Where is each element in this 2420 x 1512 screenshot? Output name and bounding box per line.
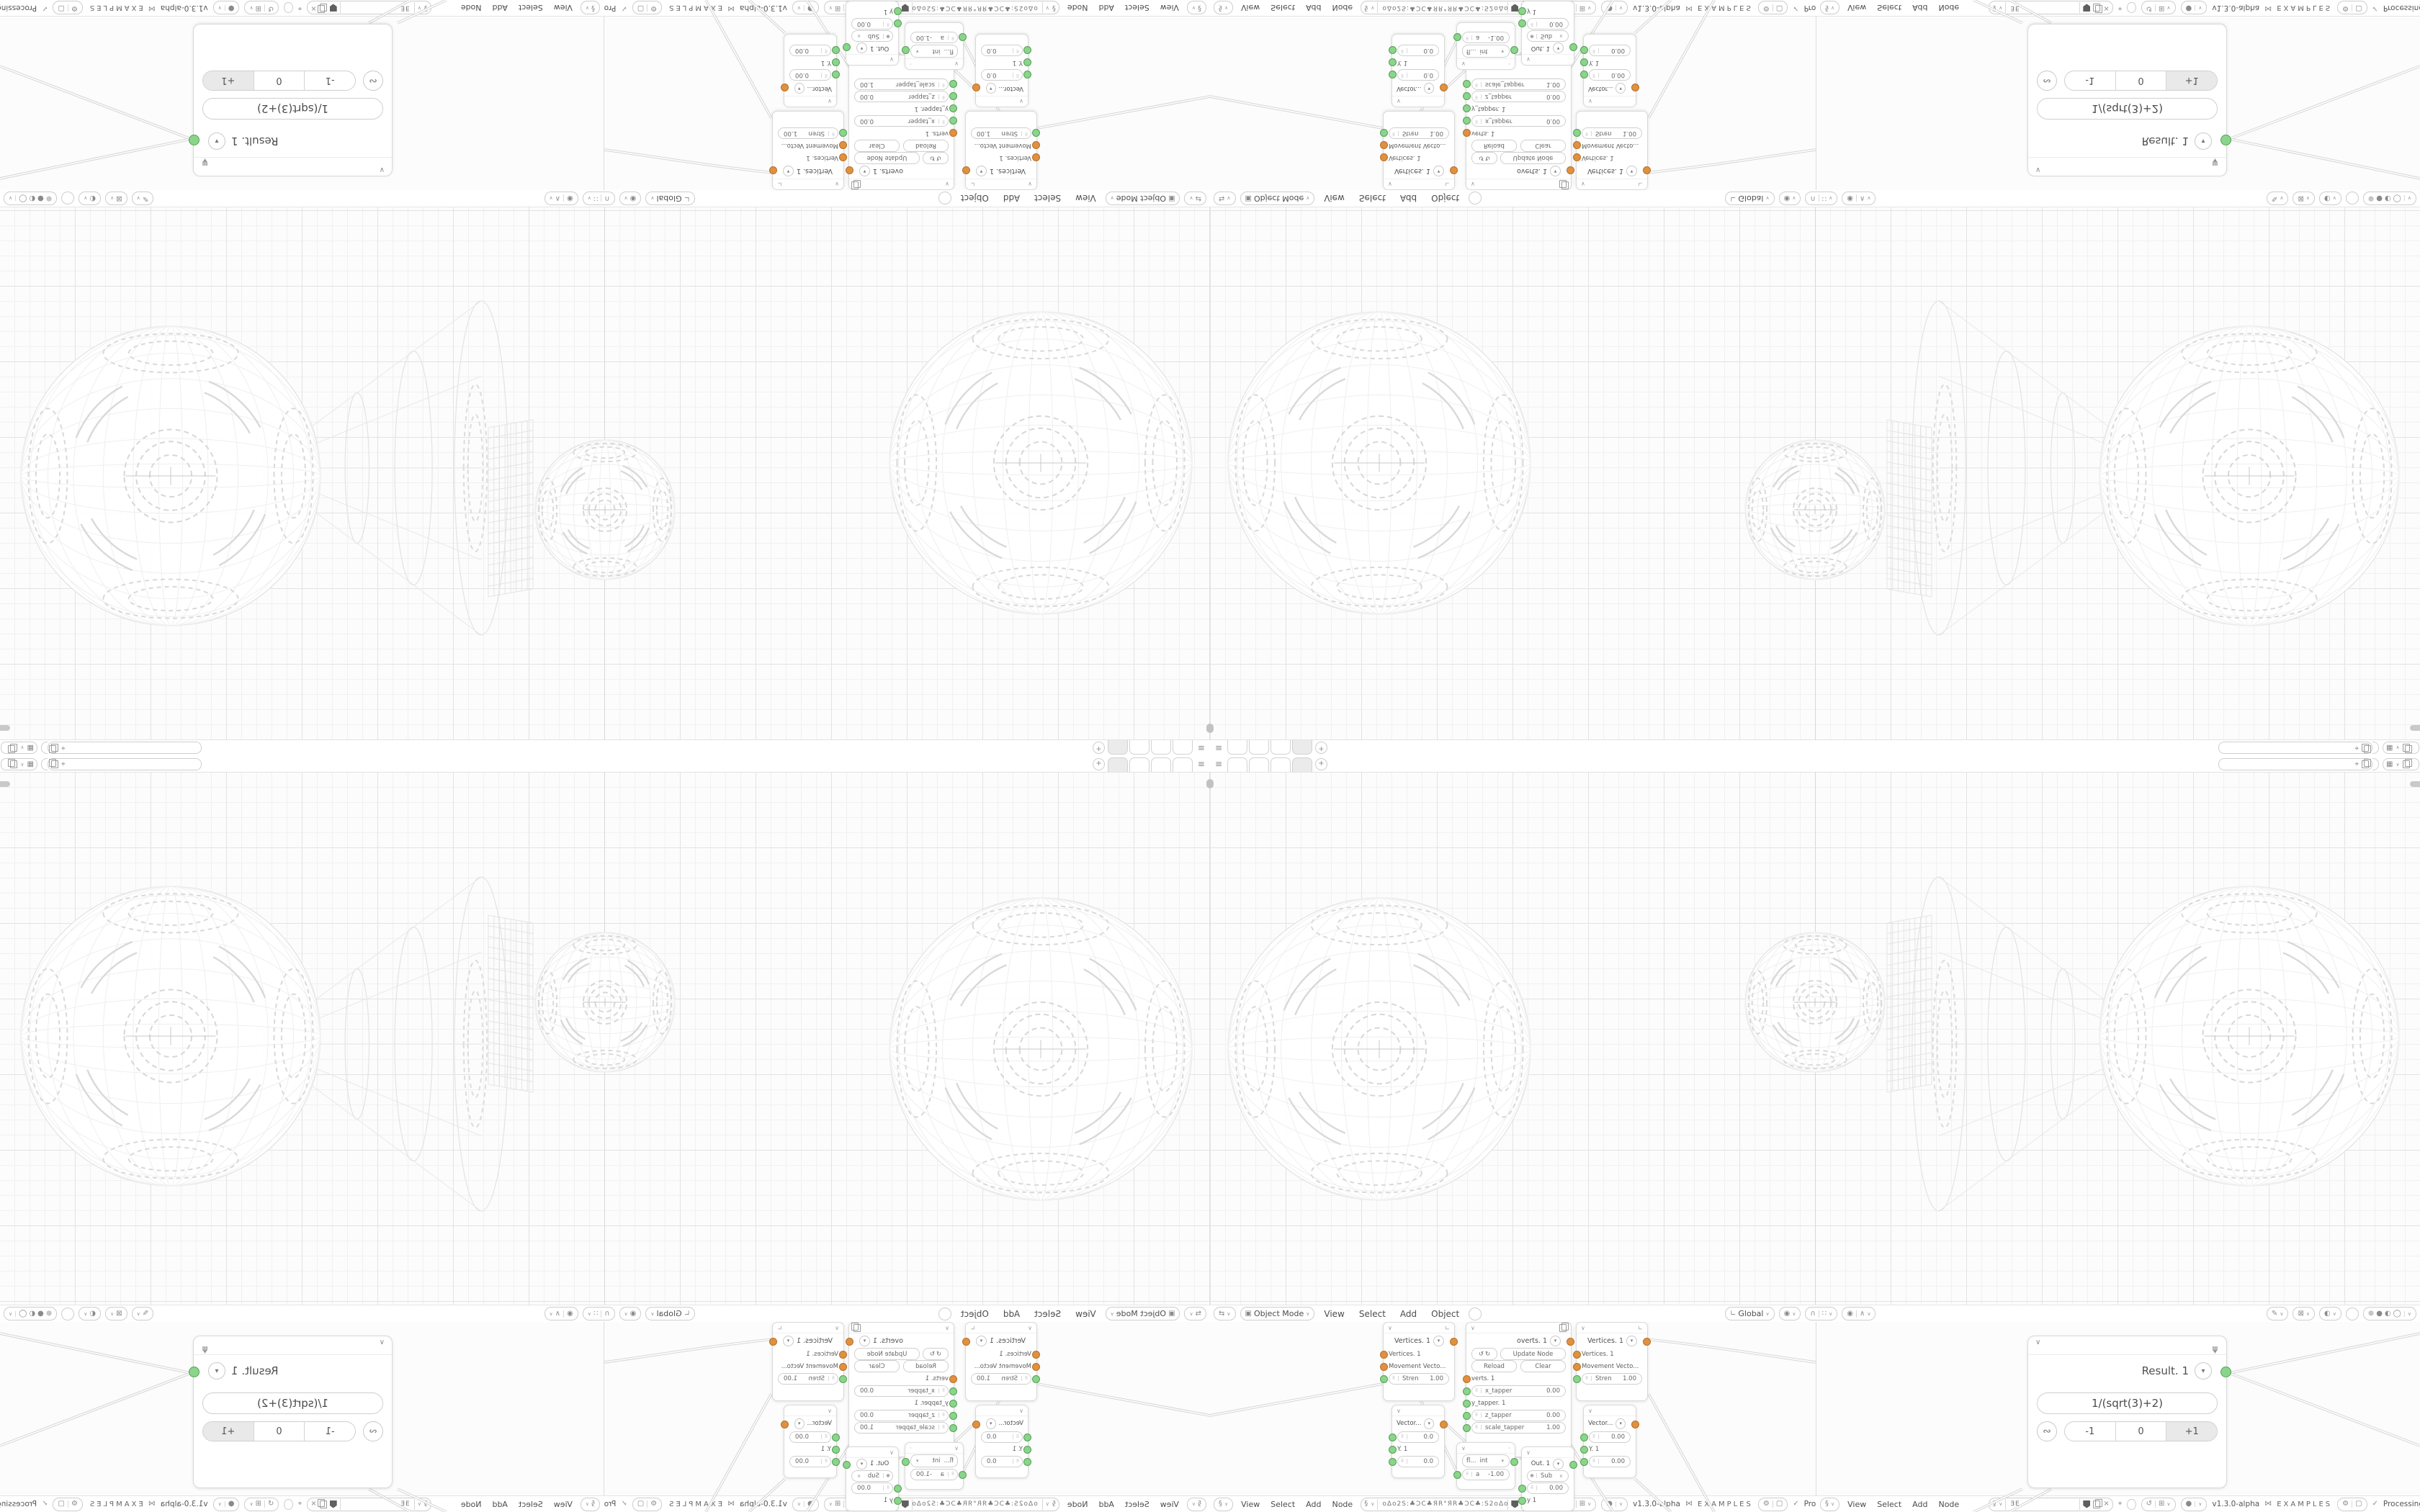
drag-handle-icon[interactable]: ⠿ bbox=[1013, 1459, 1022, 1464]
value-field[interactable]: ⠿ 0.00 bbox=[789, 70, 831, 81]
node-overts[interactable]: ∨ overts. 1 ▾ ↺ ↻ Update Node Reload Cle… bbox=[1466, 1322, 1572, 1457]
shading-wireframe-icon[interactable]: ⊕ bbox=[46, 195, 52, 202]
input-socket[interactable] bbox=[1453, 1471, 1461, 1479]
input-socket[interactable] bbox=[1573, 153, 1581, 161]
menu-select[interactable]: Select bbox=[1359, 194, 1386, 204]
input-socket[interactable] bbox=[1463, 80, 1471, 88]
dropdown-button[interactable]: ▾ bbox=[859, 166, 870, 177]
dropdown-button[interactable]: ▾ bbox=[1424, 1418, 1434, 1429]
input-socket[interactable] bbox=[1580, 1446, 1588, 1454]
workspace-tab[interactable] bbox=[1129, 757, 1149, 772]
collapse-chevron-icon[interactable]: ∨ bbox=[1526, 1449, 1531, 1456]
output-socket[interactable] bbox=[2220, 1367, 2231, 1377]
app-menu-icon[interactable]: ≡ bbox=[1198, 759, 1205, 769]
pivot-point-button[interactable]: ◉ ∨ bbox=[1779, 192, 1801, 205]
transform-orientation-dropdown[interactable]: ∟ Global ∨ bbox=[1725, 192, 1775, 205]
dropdown-button[interactable]: ▾ bbox=[1626, 1336, 1637, 1346]
input-socket[interactable] bbox=[1573, 1351, 1581, 1359]
collapse-chevron-icon[interactable]: ∨ bbox=[889, 1449, 894, 1456]
pin-icon[interactable]: ⌖ bbox=[2354, 761, 2359, 768]
drag-handle-icon[interactable]: ⠿ bbox=[1463, 1472, 1472, 1477]
shading-rendered-icon[interactable]: ◯ bbox=[19, 195, 27, 202]
value-field[interactable]: ⠿ x_tapper 0.00 bbox=[1471, 1385, 1566, 1397]
copy-icon[interactable] bbox=[2362, 760, 2369, 768]
node-overts[interactable]: ∨ overts. 1 ▾ ↺ ↻ Update Node Reload Cle… bbox=[848, 1322, 954, 1457]
copy-icon[interactable] bbox=[2403, 744, 2410, 752]
input-socket[interactable] bbox=[1023, 46, 1031, 54]
input-socket[interactable] bbox=[1573, 141, 1581, 149]
drag-handle-icon[interactable]: ⠿ bbox=[1398, 1459, 1407, 1464]
node-result[interactable]: ∨ ⋔ Result. 1 ▾ 1/(sqrt(3)+2) ∾ -1 0 +1 bbox=[2027, 1336, 2227, 1488]
drag-handle-icon[interactable]: ⠿ bbox=[1472, 82, 1482, 87]
input-socket[interactable] bbox=[1580, 58, 1588, 66]
dropdown-button[interactable]: ▾ bbox=[783, 166, 794, 177]
zero-button[interactable]: 0 bbox=[2115, 71, 2166, 90]
value-field[interactable]: ⠿ Stren 1.00 bbox=[971, 128, 1031, 140]
output-socket[interactable] bbox=[1450, 1338, 1458, 1346]
shading-material-icon[interactable]: ◐ bbox=[2385, 1310, 2391, 1318]
search-circle-button[interactable] bbox=[1469, 1308, 1482, 1320]
input-socket[interactable] bbox=[1573, 1363, 1581, 1371]
value-field[interactable]: ⠿ a -1.00 bbox=[1462, 32, 1510, 44]
input-socket[interactable] bbox=[839, 153, 847, 161]
decrement-button[interactable]: -1 bbox=[2065, 1422, 2115, 1441]
node-vector[interactable]: ∨ Vector... ▾ ⠿ 0.0 Y. 1 ⠿ 0.0 bbox=[1391, 1405, 1445, 1478]
input-socket[interactable] bbox=[949, 1400, 957, 1408]
input-socket[interactable] bbox=[1463, 1412, 1471, 1420]
drag-handle-icon[interactable]: ⠿ bbox=[1472, 1413, 1482, 1418]
xray-toggle-button[interactable] bbox=[61, 1308, 74, 1320]
collapse-chevron-icon[interactable]: ∨ bbox=[1461, 1445, 1466, 1452]
dropdown-button[interactable]: ▾ bbox=[856, 1459, 867, 1470]
refresh-buttons[interactable]: ↺ ↻ bbox=[923, 152, 949, 164]
value-field[interactable]: ⠿ Stren 1.00 bbox=[778, 1373, 838, 1385]
operation-select[interactable]: ● Sub ∨ bbox=[851, 1470, 893, 1482]
collapse-chevron-icon[interactable]: ∨ bbox=[828, 98, 832, 104]
input-socket[interactable] bbox=[1380, 153, 1388, 161]
undo-icon[interactable]: ↺ bbox=[936, 1351, 941, 1358]
input-socket[interactable] bbox=[1463, 1424, 1471, 1432]
input-socket[interactable] bbox=[1518, 19, 1526, 27]
increment-button[interactable]: +1 bbox=[203, 1422, 254, 1441]
output-socket[interactable] bbox=[902, 1458, 910, 1466]
input-socket[interactable] bbox=[1518, 1485, 1526, 1493]
node-vertices[interactable]: ∨ ∟ Vertices. 1 ▾ Vertices. 1 Movement V… bbox=[965, 1322, 1037, 1401]
menu-select[interactable]: Select bbox=[1359, 1309, 1386, 1319]
redo-icon[interactable]: ↻ bbox=[1485, 1351, 1490, 1358]
drag-handle-icon[interactable]: ⠿ bbox=[938, 1425, 948, 1430]
gizmo-toggle-button[interactable]: ⊠ ∨ bbox=[2293, 1307, 2315, 1320]
shading-material-icon[interactable]: ◐ bbox=[29, 195, 35, 202]
proportional-edit-button[interactable]: ◉ ∧ ∨ bbox=[544, 192, 578, 205]
value-field[interactable]: ⠿ z_tapper 0.00 bbox=[854, 91, 949, 103]
node-int-input[interactable]: ∨ · fl... int ▾ ⠿ a -1.00 bbox=[905, 1442, 964, 1490]
input-socket[interactable] bbox=[1463, 104, 1471, 112]
drag-handle-icon[interactable]: ⠿ bbox=[938, 1413, 948, 1418]
value-field[interactable]: ⠿ Stren 1.00 bbox=[1389, 128, 1449, 140]
editor-type-button[interactable]: ⇆ ∨ bbox=[1184, 1307, 1206, 1320]
value-field[interactable]: ⠿ 0.0 bbox=[1397, 45, 1439, 57]
drag-handle-icon[interactable]: ⠿ bbox=[1013, 1434, 1022, 1439]
menu-add[interactable]: Add bbox=[1003, 1309, 1020, 1319]
menu-select[interactable]: Select bbox=[1034, 1309, 1061, 1319]
pin-icon[interactable]: ⌖ bbox=[2354, 744, 2359, 752]
node-vertices[interactable]: ∨ ∟ Vertices. 1 ▾ Vertices. 1 Movement V… bbox=[1576, 1322, 1648, 1401]
refresh-buttons[interactable]: ↺ ↻ bbox=[923, 1348, 949, 1360]
copy-icon[interactable] bbox=[2403, 760, 2410, 768]
menu-add[interactable]: Add bbox=[1003, 194, 1020, 204]
drag-handle-icon[interactable]: ⠿ bbox=[1013, 73, 1022, 78]
add-workspace-button[interactable]: + bbox=[1315, 742, 1327, 754]
value-field[interactable]: ⠿ x_tapper 0.00 bbox=[1471, 116, 1566, 127]
menu-select[interactable]: Select bbox=[1034, 194, 1061, 204]
input-socket[interactable] bbox=[839, 1375, 847, 1383]
type-select[interactable]: fl... int ▾ bbox=[1462, 45, 1510, 58]
gizmo-toggle-button[interactable]: ⊠ ∨ bbox=[105, 1307, 127, 1320]
drag-handle-icon[interactable]: ⠿ bbox=[938, 1388, 948, 1393]
search-circle-button[interactable] bbox=[1469, 192, 1482, 205]
link-toggle-button[interactable]: ∾ bbox=[363, 1421, 383, 1441]
menu-view[interactable]: View bbox=[1075, 1309, 1095, 1319]
drag-handle-icon[interactable]: ⠿ bbox=[1021, 131, 1031, 136]
view-layer-selector[interactable]: ▦ ∨ bbox=[2383, 758, 2419, 770]
pivot-point-button[interactable]: ◉ ∨ bbox=[619, 192, 642, 205]
dropdown-button[interactable]: ▾ bbox=[2195, 1362, 2212, 1380]
xray-toggle-button[interactable] bbox=[61, 192, 74, 205]
refresh-buttons[interactable]: ↺ ↻ bbox=[1471, 152, 1497, 164]
value-field[interactable]: ⠿ 0.0 bbox=[981, 1431, 1023, 1443]
input-socket[interactable] bbox=[959, 33, 967, 41]
update-node-button[interactable]: Update Node bbox=[854, 152, 920, 164]
drag-handle-icon[interactable]: ⠿ bbox=[821, 73, 830, 78]
drag-handle-icon[interactable]: ⠿ bbox=[1013, 48, 1022, 53]
dropdown-button[interactable]: ▾ bbox=[986, 1418, 996, 1429]
input-socket[interactable] bbox=[959, 1471, 967, 1479]
drag-handle-icon[interactable]: ⠿ bbox=[1528, 1485, 1537, 1490]
menu-object[interactable]: Object bbox=[1431, 194, 1459, 204]
output-socket[interactable] bbox=[962, 167, 970, 175]
mode-dropdown[interactable]: ▣ Object Mode ∨ bbox=[1106, 192, 1180, 205]
update-node-button[interactable]: Update Node bbox=[1500, 1348, 1566, 1360]
drag-handle-icon[interactable]: ⠿ bbox=[938, 82, 948, 87]
mode-dropdown[interactable]: ▣ Object Mode ∨ bbox=[1106, 1307, 1180, 1320]
link-toggle-button[interactable]: ∾ bbox=[2037, 1421, 2057, 1441]
shading-rendered-icon[interactable]: ◯ bbox=[19, 1310, 27, 1318]
clear-button[interactable]: Clear bbox=[1520, 1360, 1566, 1372]
collapse-chevron-icon[interactable]: ∨ bbox=[1019, 98, 1023, 104]
redo-icon[interactable]: ↻ bbox=[930, 155, 935, 162]
shading-solid-icon[interactable]: ● bbox=[2376, 1310, 2383, 1318]
redo-icon[interactable]: ↻ bbox=[1485, 155, 1490, 162]
collapse-chevron-icon[interactable]: ∨ bbox=[2035, 158, 2040, 174]
value-field[interactable]: ⠿ 0.00 bbox=[1589, 1431, 1631, 1443]
drag-handle-icon[interactable]: ⠿ bbox=[1582, 1376, 1592, 1381]
copy-icon[interactable] bbox=[10, 760, 17, 768]
shading-wireframe-icon[interactable]: ⊕ bbox=[2368, 195, 2374, 202]
dropdown-button[interactable]: ▾ bbox=[208, 132, 225, 150]
node-math-sub[interactable]: ∨ Out. 1 ▾ ● Sub ∨ ⠿ 0.00 y 1 bbox=[846, 1, 899, 66]
redo-icon[interactable]: ↻ bbox=[930, 1351, 935, 1358]
transform-orientation-dropdown[interactable]: ∟ Global ∨ bbox=[1725, 1307, 1775, 1320]
gizmo-toggle-button[interactable]: ⊠ ∨ bbox=[2293, 192, 2315, 205]
collapse-chevron-icon[interactable]: ∨ bbox=[1588, 1408, 1592, 1414]
value-field[interactable]: ⠿ 0.0 bbox=[981, 70, 1023, 81]
output-socket[interactable] bbox=[972, 84, 980, 92]
node-vertices[interactable]: ∨ ∟ Vertices. 1 ▾ Vertices. 1 Movement V… bbox=[1383, 1322, 1455, 1401]
drag-handle-icon[interactable]: ⠿ bbox=[1398, 73, 1407, 78]
viewport-3d[interactable] bbox=[1210, 772, 2420, 1305]
proportional-edit-button[interactable]: ◉ ∧ ∨ bbox=[1842, 1307, 1875, 1320]
value-field[interactable]: ⠿ 0.0 bbox=[1397, 1456, 1439, 1467]
collapse-chevron-icon[interactable]: ∨ bbox=[1019, 1408, 1023, 1414]
input-socket[interactable] bbox=[1032, 141, 1040, 149]
input-socket[interactable] bbox=[894, 1497, 902, 1505]
dropdown-button[interactable]: ▾ bbox=[976, 166, 987, 177]
node-int-input[interactable]: ∨ · fl... int ▾ ⠿ a -1.00 bbox=[1456, 1442, 1515, 1490]
node-vector[interactable]: ∨ Vector... ▾ ⠿ 0.00 Y. 1 ⠿ 0.00 bbox=[784, 1405, 837, 1478]
search-circle-button[interactable] bbox=[938, 1308, 951, 1320]
scene-selector[interactable]: ⌖ bbox=[48, 758, 202, 770]
value-field[interactable]: ⠿ x_tapper 0.00 bbox=[854, 1385, 949, 1397]
drag-handle-icon[interactable]: ⠿ bbox=[1582, 131, 1592, 136]
area-corner-handle[interactable] bbox=[0, 781, 10, 787]
workspace-tab[interactable] bbox=[1270, 757, 1291, 772]
input-socket[interactable] bbox=[1518, 1497, 1526, 1505]
output-socket[interactable] bbox=[1510, 1458, 1518, 1466]
menu-view[interactable]: View bbox=[1324, 194, 1344, 204]
input-socket[interactable] bbox=[1573, 129, 1581, 137]
workspace-tab[interactable] bbox=[1270, 740, 1291, 755]
collapse-chevron-icon[interactable]: ∨ bbox=[945, 1325, 949, 1331]
input-socket[interactable] bbox=[894, 7, 902, 15]
value-field[interactable]: ⠿ 0.00 bbox=[789, 1431, 831, 1443]
shading-wireframe-icon[interactable]: ⊕ bbox=[46, 1310, 52, 1318]
node-overts[interactable]: ∨ overts. 1 ▾ ↺ ↻ Update Node Reload Cle… bbox=[1466, 55, 1572, 190]
collapse-chevron-icon[interactable]: ∨ bbox=[828, 1408, 832, 1414]
collapse-chevron-icon[interactable]: ∨ bbox=[1397, 1408, 1401, 1414]
workspace-tab[interactable] bbox=[1249, 757, 1269, 772]
value-field[interactable]: ⠿ scale_tapper 1.00 bbox=[1471, 1422, 1566, 1434]
value-field[interactable]: ⠿ 0.00 bbox=[851, 19, 893, 30]
output-socket[interactable] bbox=[1440, 1421, 1448, 1428]
drag-handle-icon[interactable]: ⠿ bbox=[948, 35, 957, 40]
collapse-chevron-icon[interactable]: ∨ bbox=[1581, 181, 1585, 187]
drag-handle-icon[interactable]: ⠿ bbox=[1472, 119, 1482, 124]
transform-orientation-dropdown[interactable]: ∟ Global ∨ bbox=[645, 192, 695, 205]
input-socket[interactable] bbox=[1032, 129, 1040, 137]
value-field[interactable]: ⠿ Stren 1.00 bbox=[1389, 1373, 1449, 1385]
app-menu-icon[interactable]: ≡ bbox=[1215, 743, 1222, 753]
increment-button[interactable]: +1 bbox=[2166, 71, 2217, 90]
input-socket[interactable] bbox=[1463, 1375, 1471, 1383]
reload-button[interactable]: Reload bbox=[1471, 1360, 1517, 1372]
shading-solid-icon[interactable]: ● bbox=[37, 1310, 44, 1318]
shading-material-icon[interactable]: ◐ bbox=[29, 1310, 35, 1318]
input-socket[interactable] bbox=[832, 71, 840, 78]
area-corner-handle[interactable] bbox=[2410, 725, 2420, 731]
drag-handle-icon[interactable]: ⠿ bbox=[1389, 1376, 1399, 1381]
input-socket[interactable] bbox=[949, 117, 957, 125]
dropdown-button[interactable]: ▾ bbox=[1433, 166, 1444, 177]
decrement-button[interactable]: -1 bbox=[305, 71, 355, 90]
view-layer-selector[interactable]: ▦ ∨ bbox=[1, 758, 37, 770]
dropdown-button[interactable]: ▾ bbox=[1626, 166, 1637, 177]
input-socket[interactable] bbox=[1463, 117, 1471, 125]
input-socket[interactable] bbox=[839, 1351, 847, 1359]
input-socket[interactable] bbox=[1380, 1363, 1388, 1371]
dropdown-button[interactable]: ▾ bbox=[794, 1418, 805, 1429]
dropdown-button[interactable]: ▾ bbox=[1615, 84, 1626, 94]
zero-button[interactable]: 0 bbox=[254, 1422, 305, 1441]
drag-handle-icon[interactable]: ⠿ bbox=[938, 94, 948, 99]
workspace-tab[interactable] bbox=[1227, 757, 1247, 772]
input-socket[interactable] bbox=[1023, 1434, 1031, 1441]
workspace-tab-active[interactable] bbox=[1108, 757, 1128, 772]
shading-rendered-icon[interactable]: ◯ bbox=[2393, 1310, 2401, 1318]
output-socket[interactable] bbox=[972, 1421, 980, 1428]
scene-selector[interactable]: ⌖ bbox=[48, 742, 202, 754]
shading-mode-switch[interactable]: ⊕ ● ◐ ◯ ∨ bbox=[2363, 1307, 2416, 1320]
dropdown-button[interactable]: ▾ bbox=[1553, 43, 1564, 54]
value-field[interactable]: ⠿ 0.00 bbox=[789, 45, 831, 57]
collapse-chevron-icon[interactable]: ∨ bbox=[954, 1445, 959, 1452]
drag-handle-icon[interactable]: ⠿ bbox=[821, 48, 830, 53]
snapping-button[interactable]: ∩ ∷ ∨ bbox=[583, 192, 615, 205]
input-socket[interactable] bbox=[1023, 58, 1031, 66]
drag-handle-icon[interactable]: ⠿ bbox=[1398, 48, 1407, 53]
area-corner-handle[interactable] bbox=[0, 725, 10, 731]
viewport-3d[interactable] bbox=[1210, 207, 2420, 740]
input-socket[interactable] bbox=[1518, 7, 1526, 15]
node-vertices[interactable]: ∨ ∟ Vertices. 1 ▾ Vertices. 1 Movement V… bbox=[772, 111, 844, 190]
node-result[interactable]: ∨ ⋔ Result. 1 ▾ 1/(sqrt(3)+2) ∾ -1 0 +1 bbox=[2027, 24, 2227, 176]
input-socket[interactable] bbox=[1389, 58, 1397, 66]
refresh-buttons[interactable]: ↺ ↻ bbox=[1471, 1348, 1497, 1360]
drag-handle-icon[interactable]: ⠿ bbox=[1590, 48, 1599, 53]
view-layer-selector[interactable]: ▦ ∨ bbox=[1, 742, 37, 754]
pivot-point-button[interactable]: ◉ ∨ bbox=[1779, 1307, 1801, 1320]
zero-button[interactable]: 0 bbox=[254, 71, 305, 90]
value-field[interactable]: ⠿ z_tapper 0.00 bbox=[854, 1410, 949, 1421]
dropdown-button[interactable]: ▾ bbox=[1433, 1336, 1444, 1346]
input-socket[interactable] bbox=[1463, 92, 1471, 100]
input-socket[interactable] bbox=[839, 141, 847, 149]
input-socket[interactable] bbox=[1023, 1446, 1031, 1454]
value-field[interactable]: ⠿ 0.00 bbox=[851, 1482, 893, 1494]
input-socket[interactable] bbox=[832, 1446, 840, 1454]
input-socket[interactable] bbox=[1389, 46, 1397, 54]
shading-mode-switch[interactable]: ⊕ ● ◐ ◯ ∨ bbox=[2363, 192, 2416, 205]
pin-icon[interactable]: ⌖ bbox=[61, 761, 66, 768]
dropdown-button[interactable]: ▾ bbox=[1424, 84, 1434, 94]
menu-object[interactable]: Object bbox=[1431, 1309, 1459, 1319]
dropdown-button[interactable]: ▾ bbox=[976, 1336, 987, 1346]
expression-field[interactable]: 1/(sqrt(3)+2) bbox=[202, 98, 383, 120]
editor-type-button[interactable]: ⇆ ∨ bbox=[1184, 192, 1206, 205]
node-vertices[interactable]: ∨ ∟ Vertices. 1 ▾ Vertices. 1 Movement V… bbox=[1383, 111, 1455, 190]
copy-icon[interactable] bbox=[51, 744, 58, 752]
viewport-3d[interactable] bbox=[0, 207, 1210, 740]
output-socket[interactable] bbox=[962, 1338, 970, 1346]
input-socket[interactable] bbox=[949, 80, 957, 88]
input-socket[interactable] bbox=[1032, 1363, 1040, 1371]
reload-button[interactable]: Reload bbox=[1471, 140, 1517, 152]
expression-field[interactable]: 1/(sqrt(3)+2) bbox=[2037, 98, 2218, 120]
shading-mode-switch[interactable]: ⊕ ● ◐ ◯ ∨ bbox=[4, 1307, 57, 1320]
collapse-chevron-icon[interactable]: ∨ bbox=[380, 1338, 385, 1354]
copy-icon[interactable] bbox=[2362, 744, 2369, 752]
editor-type-button[interactable]: ⇆ ∨ bbox=[1214, 1307, 1236, 1320]
value-field[interactable]: ⠿ a -1.00 bbox=[910, 1469, 958, 1480]
node-vector[interactable]: ∨ Vector... ▾ ⠿ 0.00 Y. 1 ⠿ 0.00 bbox=[1583, 34, 1636, 107]
input-socket[interactable] bbox=[1580, 71, 1588, 78]
drag-handle-icon[interactable]: ⠿ bbox=[828, 131, 838, 136]
drag-handle-icon[interactable]: ⠿ bbox=[1389, 131, 1399, 136]
shading-rendered-icon[interactable]: ◯ bbox=[2393, 195, 2401, 202]
node-vertices[interactable]: ∨ ∟ Vertices. 1 ▾ Vertices. 1 Movement V… bbox=[772, 1322, 844, 1401]
xray-toggle-button[interactable] bbox=[2346, 1308, 2359, 1320]
add-workspace-button[interactable]: + bbox=[1093, 758, 1105, 770]
output-socket[interactable] bbox=[781, 1421, 789, 1428]
drag-handle-icon[interactable]: ⠿ bbox=[821, 1434, 830, 1439]
area-corner-handle[interactable] bbox=[2410, 781, 2420, 787]
transform-orientation-dropdown[interactable]: ∟ Global ∨ bbox=[645, 1307, 695, 1320]
collapse-chevron-icon[interactable]: ∨ bbox=[1028, 181, 1032, 187]
copy-icon[interactable] bbox=[51, 760, 58, 768]
annotate-tool-button[interactable]: ✎ ∨ bbox=[132, 192, 154, 205]
dropdown-button[interactable]: ▾ bbox=[794, 84, 805, 94]
workspace-tab[interactable] bbox=[1227, 740, 1247, 755]
undo-icon[interactable]: ↺ bbox=[936, 155, 941, 162]
node-vector[interactable]: ∨ Vector... ▾ ⠿ 0.00 Y. 1 ⠿ 0.00 bbox=[1583, 1405, 1636, 1478]
operation-select[interactable]: ● Sub ∨ bbox=[851, 31, 893, 42]
annotate-tool-button[interactable]: ✎ ∨ bbox=[132, 1307, 154, 1320]
value-field[interactable]: ⠿ Stren 1.00 bbox=[778, 128, 838, 140]
update-node-button[interactable]: Update Node bbox=[1500, 152, 1566, 164]
output-socket[interactable] bbox=[846, 167, 853, 175]
drag-handle-icon[interactable]: ⠿ bbox=[883, 22, 892, 27]
value-field[interactable]: ⠿ 0.00 bbox=[1589, 45, 1631, 57]
value-field[interactable]: ⠿ 0.0 bbox=[1397, 70, 1439, 81]
view-layer-selector[interactable]: ▦ ∨ bbox=[2383, 742, 2419, 754]
link-toggle-button[interactable]: ∾ bbox=[2037, 71, 2057, 91]
input-socket[interactable] bbox=[1463, 129, 1471, 137]
collapse-chevron-icon[interactable]: ∨ bbox=[889, 56, 894, 63]
shading-material-icon[interactable]: ◐ bbox=[2385, 195, 2391, 202]
output-socket[interactable] bbox=[1569, 1461, 1577, 1469]
node-math-sub[interactable]: ∨ Out. 1 ▾ ● Sub ∨ ⠿ 0.00 y 1 bbox=[1521, 1446, 1574, 1511]
zero-button[interactable]: 0 bbox=[2115, 1422, 2166, 1441]
area-resize-grip[interactable] bbox=[1206, 779, 1210, 788]
output-socket[interactable] bbox=[843, 1461, 851, 1469]
menu-object[interactable]: Object bbox=[961, 1309, 989, 1319]
input-socket[interactable] bbox=[1580, 1458, 1588, 1466]
overlays-toggle-button[interactable]: ◐ ∨ bbox=[79, 192, 101, 205]
output-socket[interactable] bbox=[846, 1338, 853, 1346]
input-socket[interactable] bbox=[1380, 141, 1388, 149]
collapse-chevron-icon[interactable]: ∨ bbox=[1388, 1325, 1392, 1331]
output-socket[interactable] bbox=[843, 44, 851, 52]
value-field[interactable]: ⠿ 0.0 bbox=[981, 1456, 1023, 1467]
app-menu-icon[interactable]: ≡ bbox=[1198, 743, 1205, 753]
drag-handle-icon[interactable]: ⠿ bbox=[1590, 73, 1599, 78]
input-socket[interactable] bbox=[949, 1424, 957, 1432]
input-socket[interactable] bbox=[1389, 1458, 1397, 1466]
shading-wireframe-icon[interactable]: ⊕ bbox=[2368, 1310, 2374, 1318]
node-vector[interactable]: ∨ Vector... ▾ ⠿ 0.0 Y. 1 ⠿ 0.0 bbox=[975, 34, 1028, 107]
input-socket[interactable] bbox=[839, 129, 847, 137]
node-int-input[interactable]: ∨ · fl... int ▾ ⠿ a -1.00 bbox=[1456, 22, 1515, 70]
